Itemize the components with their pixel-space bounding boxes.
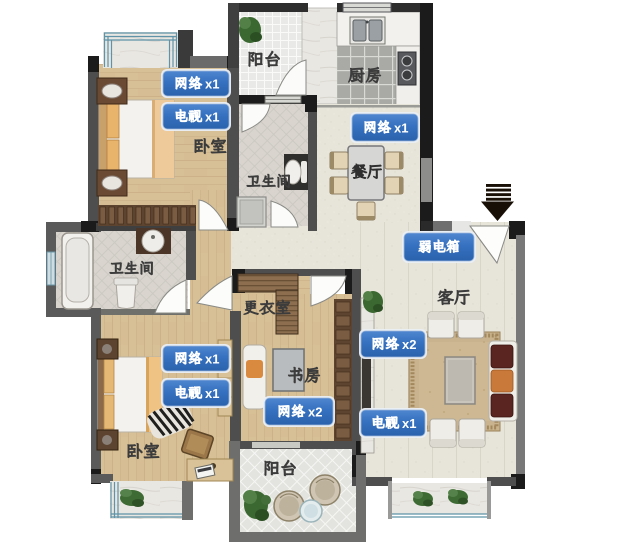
svg-text:x2: x2 bbox=[402, 337, 416, 352]
svg-text:x1: x1 bbox=[205, 386, 219, 401]
svg-text:x2: x2 bbox=[308, 405, 322, 420]
svg-text:x1: x1 bbox=[394, 121, 408, 136]
svg-text:x1: x1 bbox=[205, 77, 219, 92]
svg-text:x1: x1 bbox=[205, 352, 219, 367]
svg-text:x1: x1 bbox=[205, 110, 219, 125]
svg-text:x1: x1 bbox=[402, 416, 416, 431]
